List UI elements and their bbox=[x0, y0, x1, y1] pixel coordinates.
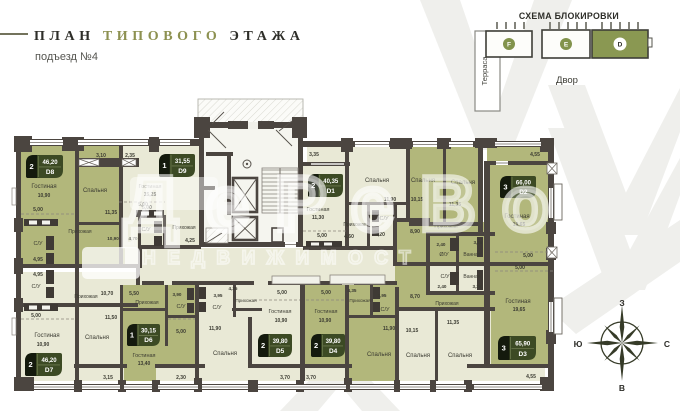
svg-text:5,00: 5,00 bbox=[277, 290, 287, 296]
svg-text:3,95: 3,95 bbox=[214, 293, 223, 298]
svg-text:Гостиная: Гостиная bbox=[132, 353, 155, 359]
svg-text:ПЛАН ТИПОВОГО ЭТАЖА: ПЛАН ТИПОВОГО ЭТАЖА bbox=[34, 29, 305, 44]
svg-text:Ø/У: Ø/У bbox=[439, 252, 449, 258]
svg-text:11,90: 11,90 bbox=[209, 326, 221, 332]
svg-text:Прихожая: Прихожая bbox=[435, 301, 458, 307]
svg-text:2: 2 bbox=[314, 341, 318, 350]
svg-text:4,35: 4,35 bbox=[229, 286, 238, 291]
svg-text:4,95: 4,95 bbox=[33, 257, 43, 263]
svg-text:СХЕМА БЛОКИРОВКИ: СХЕМА БЛОКИРОВКИ bbox=[519, 11, 619, 21]
svg-text:2,30: 2,30 bbox=[176, 375, 186, 381]
svg-text:19,65: 19,65 bbox=[513, 307, 526, 313]
svg-text:Ванная: Ванная bbox=[463, 274, 480, 280]
svg-text:Спальня: Спальня bbox=[83, 188, 107, 194]
svg-text:11,35: 11,35 bbox=[105, 210, 117, 216]
svg-text:D7: D7 bbox=[45, 367, 54, 374]
svg-text:5,00: 5,00 bbox=[31, 313, 41, 319]
svg-text:3,95: 3,95 bbox=[378, 293, 387, 298]
svg-text:10,90: 10,90 bbox=[37, 342, 50, 348]
svg-text:10,90: 10,90 bbox=[275, 318, 288, 324]
svg-text:Спальня: Спальня bbox=[367, 352, 391, 358]
svg-text:Ю: Ю bbox=[574, 339, 583, 349]
svg-text:3,25: 3,25 bbox=[473, 284, 482, 289]
svg-text:10,15: 10,15 bbox=[406, 328, 419, 334]
svg-text:Двор: Двор bbox=[556, 75, 578, 86]
svg-text:2: 2 bbox=[28, 360, 32, 369]
svg-text:39,80: 39,80 bbox=[326, 339, 342, 345]
svg-text:46,20: 46,20 bbox=[43, 160, 59, 166]
svg-text:3,90: 3,90 bbox=[173, 292, 182, 297]
svg-text:Прихожая: Прихожая bbox=[68, 229, 91, 235]
svg-text:10,90: 10,90 bbox=[107, 236, 119, 241]
svg-text:Гостиная: Гостиная bbox=[34, 333, 59, 339]
svg-text:С/У: С/У bbox=[441, 274, 451, 280]
svg-text:3: 3 bbox=[502, 344, 506, 353]
svg-text:3,35: 3,35 bbox=[309, 152, 319, 158]
svg-text:С: С bbox=[664, 339, 670, 349]
svg-text:Гостиная: Гостиная bbox=[505, 299, 530, 305]
svg-text:1: 1 bbox=[130, 331, 134, 340]
svg-text:46,20: 46,20 bbox=[42, 358, 58, 364]
svg-text:5,00: 5,00 bbox=[321, 290, 331, 296]
svg-text:С/У: С/У bbox=[34, 241, 44, 247]
svg-text:Спальня: Спальня bbox=[448, 353, 472, 359]
svg-text:5,00: 5,00 bbox=[523, 253, 533, 259]
svg-text:10,70: 10,70 bbox=[101, 291, 114, 297]
svg-text:3,70: 3,70 bbox=[306, 375, 316, 381]
svg-text:3,15: 3,15 bbox=[103, 375, 113, 381]
svg-text:2: 2 bbox=[261, 341, 265, 350]
svg-text:D3: D3 bbox=[519, 351, 528, 358]
svg-text:13,40: 13,40 bbox=[138, 361, 151, 367]
svg-text:ДеРеВо: ДеРеВо bbox=[124, 162, 576, 247]
svg-text:Гостиная: Гостиная bbox=[31, 184, 56, 190]
svg-text:5,00: 5,00 bbox=[33, 207, 43, 213]
svg-text:Терраса: Терраса bbox=[480, 56, 489, 86]
svg-text:4,55: 4,55 bbox=[526, 374, 536, 380]
svg-text:11,90: 11,90 bbox=[383, 326, 395, 332]
svg-text:11,50: 11,50 bbox=[105, 315, 117, 321]
svg-text:Прихожая: Прихожая bbox=[135, 300, 158, 306]
svg-text:D8: D8 bbox=[46, 169, 55, 176]
svg-text:D6: D6 bbox=[144, 337, 153, 344]
svg-text:С/У: С/У bbox=[381, 307, 391, 313]
svg-text:З: З bbox=[619, 298, 624, 308]
svg-text:3,70: 3,70 bbox=[280, 375, 290, 381]
svg-text:4,95: 4,95 bbox=[33, 272, 43, 278]
svg-text:Прихожая: Прихожая bbox=[235, 298, 257, 303]
svg-text:Гостиная: Гостиная bbox=[268, 309, 291, 315]
svg-text:8,70: 8,70 bbox=[410, 294, 420, 300]
svg-text:10,90: 10,90 bbox=[319, 318, 332, 324]
svg-text:5,00: 5,00 bbox=[176, 329, 186, 335]
svg-text:Гостиная: Гостиная bbox=[314, 309, 337, 315]
svg-text:Ванная: Ванная bbox=[463, 252, 480, 258]
svg-text:Прихожая: Прихожая bbox=[74, 294, 97, 300]
svg-text:11,35: 11,35 bbox=[447, 320, 459, 326]
svg-text:5,00: 5,00 bbox=[515, 265, 525, 271]
svg-text:Прихожая: Прихожая bbox=[349, 298, 371, 303]
svg-text:2: 2 bbox=[29, 162, 33, 171]
svg-text:65,90: 65,90 bbox=[515, 341, 531, 347]
svg-text:НЕДВИЖИМОСТ: НЕДВИЖИМОСТ bbox=[142, 248, 422, 269]
svg-text:В: В bbox=[619, 383, 625, 393]
svg-text:D5: D5 bbox=[276, 348, 285, 355]
svg-text:Спальня: Спальня bbox=[213, 351, 237, 357]
svg-text:E: E bbox=[564, 42, 569, 49]
svg-text:30,15: 30,15 bbox=[141, 328, 157, 334]
svg-text:F: F bbox=[507, 42, 511, 49]
svg-text:С/У: С/У bbox=[213, 305, 223, 311]
svg-text:39,80: 39,80 bbox=[273, 339, 289, 345]
svg-text:4,35: 4,35 bbox=[348, 288, 357, 293]
svg-text:Спальня: Спальня bbox=[85, 335, 109, 341]
svg-text:D: D bbox=[618, 42, 623, 49]
svg-text:подъезд №4: подъезд №4 bbox=[35, 51, 98, 63]
svg-text:2,40: 2,40 bbox=[438, 284, 447, 289]
svg-text:D4: D4 bbox=[329, 348, 338, 355]
svg-text:С/У: С/У bbox=[32, 284, 42, 290]
svg-text:5,50: 5,50 bbox=[129, 291, 139, 297]
svg-text:4,55: 4,55 bbox=[530, 152, 540, 158]
svg-text:С/У: С/У bbox=[177, 304, 187, 310]
svg-text:10,90: 10,90 bbox=[38, 193, 51, 199]
svg-text:Спальня: Спальня bbox=[406, 353, 430, 359]
